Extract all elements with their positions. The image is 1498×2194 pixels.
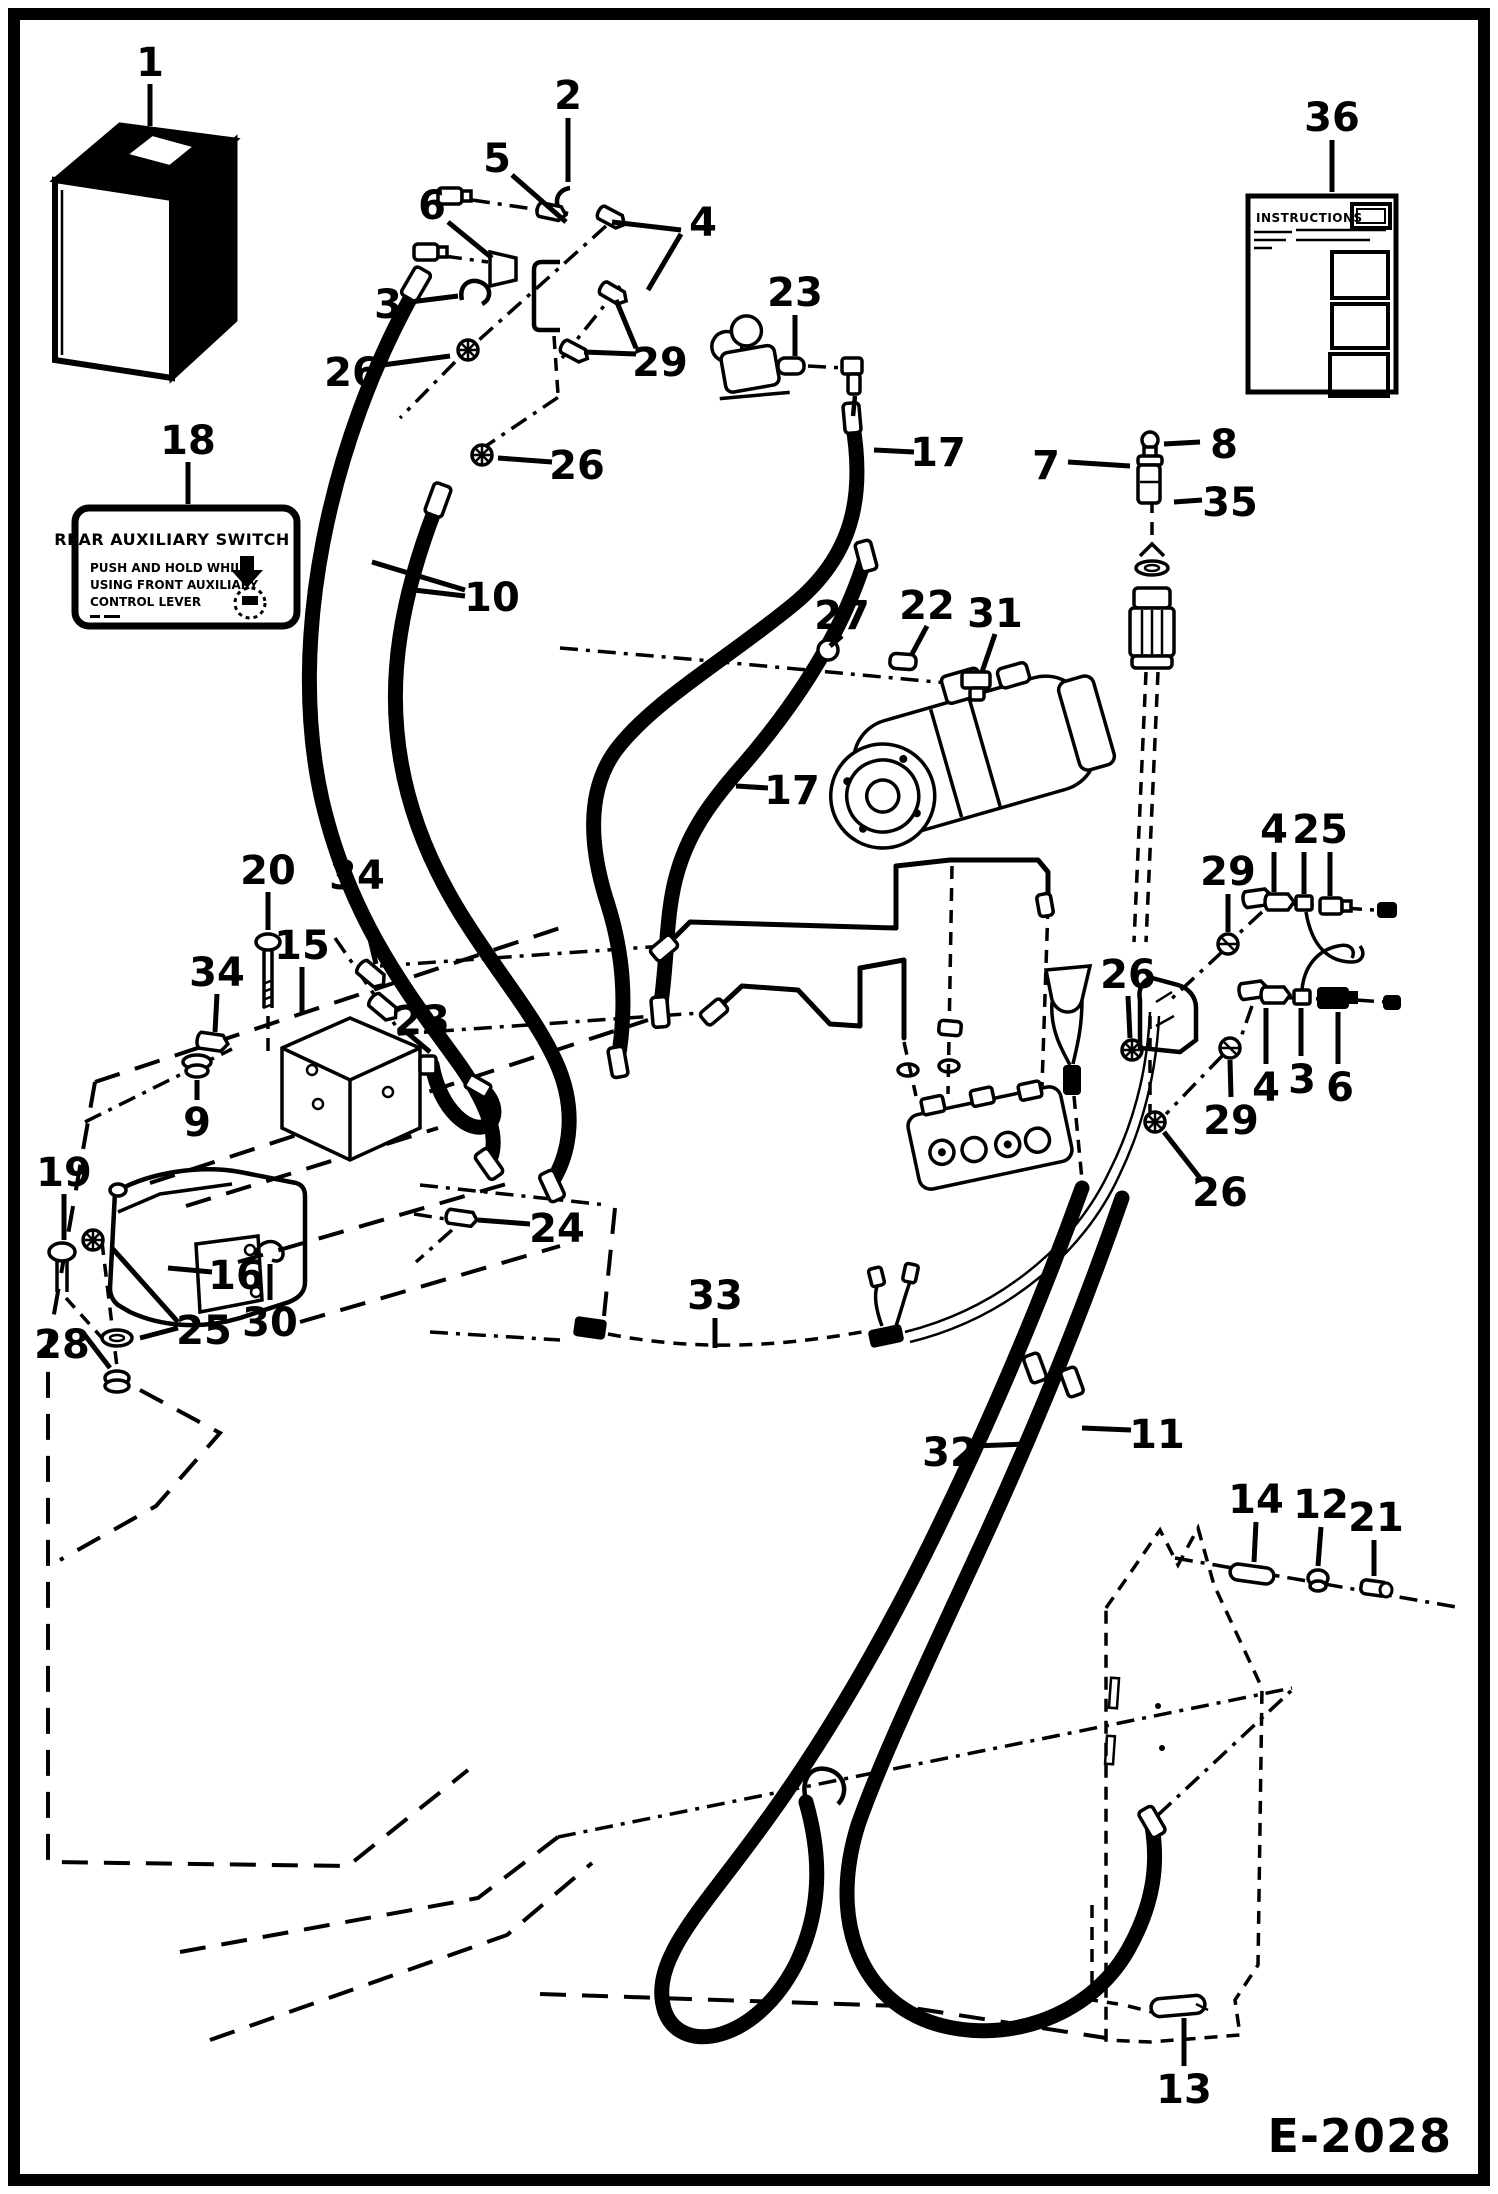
decal-line-1: PUSH AND HOLD WHILE (90, 561, 251, 575)
screw-21 (1360, 1579, 1392, 1597)
callout-34: 34 (329, 853, 385, 899)
decal-line-3: CONTROL LEVER (90, 595, 201, 609)
callout-29: 29 (1203, 1098, 1259, 1144)
decal-title: REAR AUXILIARY SWITCH (54, 530, 290, 549)
callout-20: 20 (240, 848, 296, 894)
callout-29: 29 (632, 340, 688, 386)
callout-27: 27 (814, 593, 870, 639)
callout-13: 13 (1156, 2067, 1212, 2113)
callout-26: 26 (1100, 952, 1156, 998)
callout-30: 30 (242, 1300, 298, 1346)
callout-12: 12 (1293, 1482, 1349, 1528)
decal-title: INSTRUCTIONS (1256, 211, 1363, 225)
callout-17: 17 (910, 430, 966, 476)
callout-21: 21 (1348, 1495, 1404, 1541)
nut-12 (1308, 1570, 1328, 1591)
swivel-26-mid (472, 445, 492, 465)
callout-25: 25 (176, 1308, 232, 1354)
rear-auxiliary-switch-decal: REAR AUXILIARY SWITCH PUSH AND HOLD WHIL… (54, 508, 297, 626)
callout-5: 5 (483, 136, 511, 182)
controller-box (55, 125, 235, 378)
callout-11: 11 (1129, 1412, 1185, 1458)
parts-diagram-page: REAR AUXILIARY SWITCH PUSH AND HOLD WHIL… (0, 0, 1498, 2194)
callout-31: 31 (967, 591, 1023, 637)
callout-26: 26 (1192, 1170, 1248, 1216)
callout-26: 26 (549, 443, 605, 489)
callout-15: 15 (274, 923, 330, 969)
nut-29-upper (1218, 934, 1238, 954)
nut-9 (183, 1055, 211, 1077)
callout-23: 23 (394, 998, 450, 1044)
callout-14: 14 (1228, 1477, 1284, 1523)
callout-36: 36 (1304, 95, 1360, 141)
fitting-22 (889, 653, 916, 670)
drawing-number: E-2028 (1267, 2109, 1452, 2163)
callout-26: 26 (324, 350, 380, 396)
callout-18: 18 (160, 418, 216, 464)
callout-17: 17 (764, 768, 820, 814)
instructions-decal: INSTRUCTIONS (1248, 196, 1396, 396)
star-washer-25 (83, 1230, 103, 1250)
callout-2: 2 (1292, 807, 1320, 853)
strap-13 (1150, 1995, 1208, 2018)
callout-35: 35 (1202, 480, 1258, 526)
nut-28 (105, 1371, 129, 1392)
callout-29: 29 (1200, 849, 1256, 895)
swivel-26-right-b (1145, 1112, 1165, 1132)
callout-34: 34 (189, 950, 245, 996)
callout-24: 24 (529, 1206, 585, 1252)
callout-5: 5 (1320, 807, 1348, 853)
callout-23: 23 (767, 270, 823, 316)
fitting-23-top (778, 358, 804, 374)
callout-28: 28 (34, 1322, 90, 1368)
decal-line-2: USING FRONT AUXILIARY (90, 578, 258, 592)
callout-32: 32 (922, 1430, 978, 1476)
callout-4: 4 (689, 200, 717, 246)
callout-1: 1 (136, 40, 164, 86)
callout-6: 6 (418, 183, 446, 229)
fitting-24 (445, 1209, 478, 1227)
callout-4: 4 (1260, 807, 1288, 853)
callout-8: 8 (1210, 422, 1238, 468)
callout-2: 2 (554, 73, 582, 119)
callout-33: 33 (687, 1273, 743, 1319)
callout-19: 19 (36, 1150, 92, 1196)
callout-7: 7 (1032, 443, 1060, 489)
swivel-26-top (458, 340, 478, 360)
callout-16: 16 (208, 1253, 264, 1299)
flat-washer-25 (102, 1330, 132, 1346)
callout-22: 22 (899, 583, 955, 629)
callout-9: 9 (183, 1100, 211, 1146)
callout-3: 3 (374, 282, 402, 328)
callout-3: 3 (1288, 1057, 1316, 1103)
nut-29-lower (1220, 1038, 1240, 1058)
callout-10: 10 (464, 575, 520, 621)
callout-6: 6 (1326, 1065, 1354, 1111)
